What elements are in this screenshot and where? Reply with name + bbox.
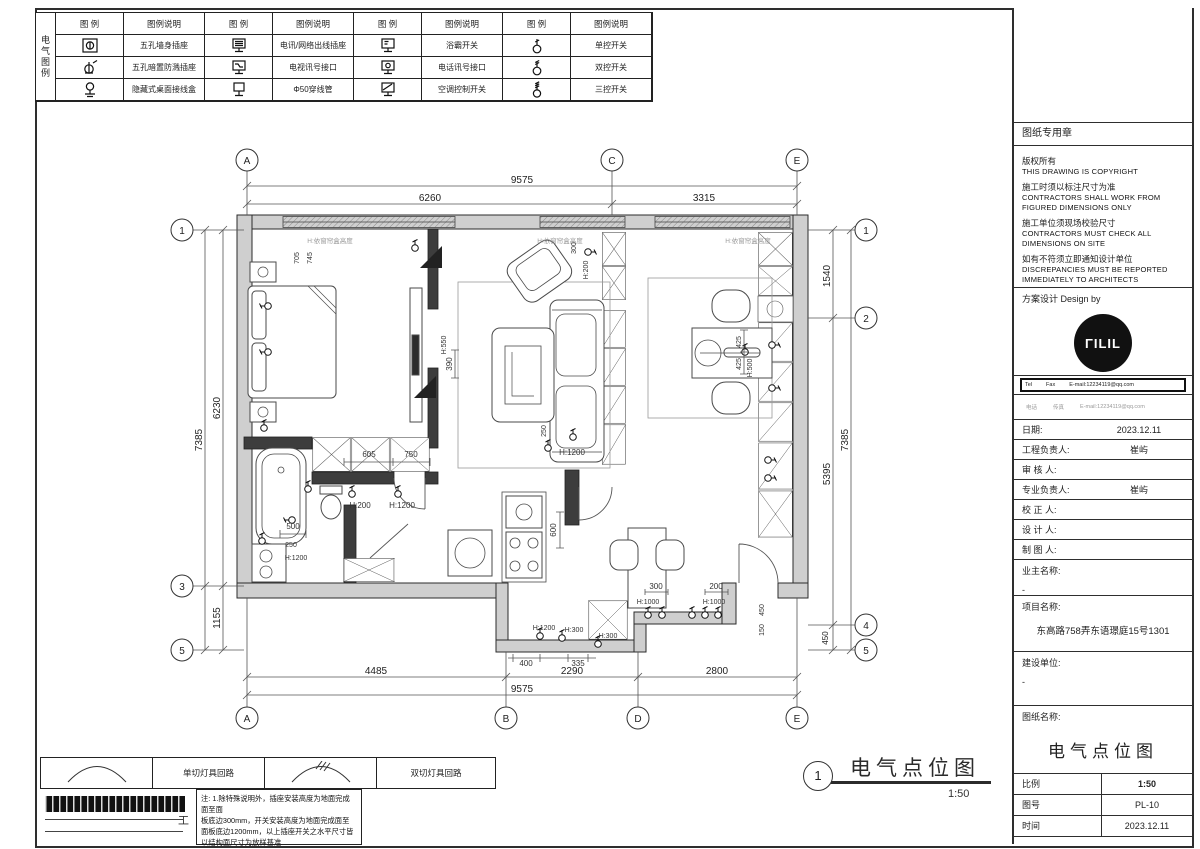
note-line: THIS DRAWING IS COPYRIGHT [1022,167,1192,177]
fax-label: Fax [1046,382,1055,388]
field-value: PL-10 [1102,795,1192,815]
furniture [248,236,772,608]
svg-text:250: 250 [285,542,297,549]
tv-signal-outlet-icon [205,57,273,79]
drawing-scale: 1:50 [948,788,969,800]
drawing-sheet: { "legend": { "side_label": "电气图例", "hea… [0,0,1200,849]
note-line: IMMEDIATELY TO ARCHITECTS [1022,275,1192,285]
installation-notes: 注: 1.除特殊说明外，插座安装高度为地面完成面至面 板底边300mm，开关安装… [196,789,362,845]
legend-header-icon: 图 例 [205,13,273,35]
svg-text:H:依窗帘盒高度: H:依窗帘盒高度 [307,236,353,245]
legend-item-label: 浴霸开关 [422,35,503,57]
field-label: 项目名称: [1022,602,1061,612]
ac-control-switch-icon [354,79,422,101]
svg-text:450: 450 [821,631,830,645]
builder-section: 建设单位:- [1014,652,1192,706]
svg-text:3315: 3315 [693,193,716,204]
phone-signal-outlet-icon [354,57,422,79]
legend-header-desc: 图例说明 [273,13,354,35]
field-label: 工程负责人: [1022,443,1094,456]
svg-text:705: 705 [294,252,301,264]
tel-label: 电话 [1026,403,1037,411]
svg-text:200: 200 [709,582,723,591]
note-line: 施工单位须现场校验尺寸 [1022,217,1192,229]
symbol-strip [45,796,185,812]
svg-text:A: A [244,156,251,167]
svg-text:2: 2 [863,314,869,325]
circuit-legend-label: 单切灯具回路 [153,758,265,788]
sheet-number-row: 图号PL-10 [1014,795,1192,816]
field-label: 审 核 人: [1022,463,1094,476]
field-label: 专业负责人: [1022,483,1094,496]
svg-text:5: 5 [179,646,185,657]
svg-text:4: 4 [863,621,869,632]
design-by-label: 方案设计 Design by [1022,294,1101,304]
svg-text:300: 300 [649,582,663,591]
svg-text:E: E [794,156,801,167]
field-label: 建设单位: [1022,658,1061,668]
legend-item-label: 双控开关 [571,57,652,79]
svg-text:H:300: H:300 [565,627,584,634]
legend-header-desc: 图例说明 [422,13,503,35]
email-label: E-mail:12234119@qq.com [1080,404,1145,410]
svg-text:H:1000: H:1000 [703,599,726,606]
svg-text:9575: 9575 [511,175,534,186]
svg-text:4485: 4485 [365,666,388,677]
svg-text:425: 425 [736,358,743,370]
note-line: 注: 1.除特殊说明外，插座安装高度为地面完成面至面 [201,793,357,815]
triple-switch-icon [503,79,571,101]
note-line: 板底边300mm，开关安装高度为地面完成面至 [201,815,357,826]
svg-text:2800: 2800 [706,666,729,677]
legend-item-label: 五孔墙身插座 [124,35,205,57]
svg-text:605: 605 [362,450,376,459]
field-value: 2023.12.11 [1094,425,1184,435]
svg-text:400: 400 [519,659,533,668]
legend-item-label: 电视讯号接口 [273,57,354,79]
strip-end-mark: 工 [178,812,189,828]
circuit-legend-label: 双切灯具回路 [377,758,495,788]
svg-text:H:1200: H:1200 [559,448,585,457]
drawing-title: 电气点位图 [850,752,980,782]
svg-text:C: C [608,156,615,167]
svg-text:H:1000: H:1000 [637,599,660,606]
field-label: 时间 [1014,816,1102,836]
field-label: 图纸名称: [1022,712,1061,722]
svg-text:335: 335 [571,659,585,668]
svg-text:H:200: H:200 [583,261,590,280]
note-line: DIMENSIONS ON SITE [1022,239,1192,249]
time-row: 时间2023.12.11 [1014,816,1192,837]
strip-line [45,819,183,820]
field-value: - [1022,677,1184,687]
studio-logo: ΓILIL [1074,314,1132,372]
field-value: - [1022,585,1184,595]
scale-row: 比例1:50 [1014,774,1192,795]
legend-header-icon: 图 例 [56,13,124,35]
single-circuit-arc-icon [41,758,153,788]
legend-item-label: 单控开关 [571,35,652,57]
title-block-blank [1014,8,1192,123]
svg-text:1155: 1155 [212,607,223,629]
field-row-project-lead: 工程负责人:崔屿 [1014,440,1192,460]
svg-text:H:1200: H:1200 [285,555,308,562]
legend-header-desc: 图例说明 [571,13,652,35]
field-label: 图号 [1014,795,1102,815]
drawing-number-bubble: 1 [803,761,833,791]
note-line: 以结构面尺寸为放样基准 [201,837,357,848]
note-line: DISCREPANCIES MUST BE REPORTED [1022,265,1192,275]
field-row-corrector: 校 正 人: [1014,500,1192,520]
note-line: 施工时须以标注尺寸为准 [1022,181,1192,193]
double-circuit-arc-icon [265,758,377,788]
strip-line [45,831,183,832]
telecom-network-outlet-icon [205,35,273,57]
svg-text:3: 3 [179,582,185,593]
svg-text:6230: 6230 [212,396,223,419]
field-label: 比例 [1014,774,1102,794]
fax-label: 传真 [1053,403,1064,411]
note-line: CONTRACTORS MUST CHECK ALL [1022,229,1192,239]
svg-text:600: 600 [549,523,558,537]
svg-text:500: 500 [286,522,300,531]
svg-text:5395: 5395 [822,462,833,485]
logo-text: ΓILIL [1085,336,1121,351]
owner-section: 业主名称:- [1014,560,1192,596]
tel-label: Tel [1025,382,1032,388]
field-label: 日期: [1022,423,1094,436]
field-value: 2023.12.11 [1102,816,1192,836]
svg-text:750: 750 [404,450,418,459]
field-row-date: 日期:2023.12.11 [1014,420,1192,440]
field-value: 1:50 [1102,774,1192,794]
concealed-desktop-junction-box-icon [56,79,124,101]
svg-text:9575: 9575 [511,684,534,695]
legend-item-label: 五孔暗置防溅插座 [124,57,205,79]
svg-text:H:550: H:550 [441,336,448,355]
single-switch-icon [503,35,571,57]
svg-text:6260: 6260 [419,193,442,204]
legend-item-label: 电讯/网络出线插座 [273,35,354,57]
legend-header-desc: 图例说明 [124,13,205,35]
legend-item-label: 三控开关 [571,79,652,101]
bath-heater-switch-icon [354,35,422,57]
floor-plan: 9575 6260 3315 4485 2290 2800 9575 7385 … [150,128,910,743]
svg-text:5: 5 [863,646,869,657]
field-value: 东高路758弄东语璟庭15号1301 [1022,623,1184,637]
note-line: 版权所有 [1022,155,1192,167]
dimension-labels: 9575 6260 3315 4485 2290 2800 9575 7385 … [194,175,851,695]
legend-header-icon: 图 例 [354,13,422,35]
five-hole-wall-socket-icon [56,35,124,57]
svg-text:745: 745 [307,252,314,264]
field-row-drafter: 制 图 人: [1014,540,1192,560]
svg-text:H:300: H:300 [599,633,618,640]
note-line: 面板底边1200mm，以上插座开关之水平尺寸皆 [201,826,357,837]
legend-header-icon: 图 例 [503,13,571,35]
svg-text:425: 425 [736,336,743,348]
design-by-section: 方案设计 Design by ΓILIL [1014,288,1192,376]
field-label: 校 正 人: [1022,503,1094,516]
svg-text:150: 150 [759,624,766,636]
svg-text:1: 1 [179,226,185,237]
field-row-designer: 设 计 人: [1014,520,1192,540]
svg-text:1540: 1540 [822,264,833,287]
legend-side-label: 电气图例 [36,13,56,101]
legend-item-label: 空调控制开关 [422,79,503,101]
field-row-discipline-lead: 专业负责人:崔屿 [1014,480,1192,500]
legend-item-label: 隐藏式桌面接线盒 [124,79,205,101]
svg-text:7385: 7385 [194,428,205,451]
field-label: 制 图 人: [1022,543,1094,556]
electrical-legend-table: 电气图例 图 例 图例说明 图 例 图例说明 图 例 图例说明 图 例 图例说明… [35,12,653,102]
field-label: 设 计 人: [1022,523,1094,536]
svg-text:7385: 7385 [840,428,851,451]
circuit-legend-table: 单切灯具回路 双切灯具回路 [40,757,496,789]
svg-text:450: 450 [759,604,766,616]
svg-text:B: B [503,714,510,725]
svg-text:390: 390 [445,357,454,371]
note-line: 如有不符须立即通知设计单位 [1022,253,1192,265]
field-row-reviewer: 审 核 人: [1014,460,1192,480]
svg-text:H:200: H:200 [349,501,371,510]
drawing-title-underline [831,781,991,784]
stamp-title: 图纸专用章 [1014,123,1192,146]
field-value: 崔屿 [1094,483,1184,496]
five-hole-splash-proof-socket-icon [56,57,124,79]
field-label: 业主名称: [1022,566,1061,576]
svg-text:250: 250 [541,425,548,437]
contact-row-2: 电话 传真 E-mail:12234119@qq.com [1014,395,1192,420]
svg-text:300: 300 [571,242,578,254]
svg-text:H:依窗帘盒高度: H:依窗帘盒高度 [725,236,771,245]
email-label: E-mail:12234119@qq.com [1069,382,1134,388]
note-line: FIGURED DIMENSIONS ONLY [1022,203,1192,213]
svg-text:E: E [794,714,801,725]
svg-text:A: A [244,714,251,725]
title-block: 图纸专用章 版权所有 THIS DRAWING IS COPYRIGHT 施工时… [1012,8,1192,844]
double-switch-icon [503,57,571,79]
svg-text:H:1200: H:1200 [389,501,415,510]
svg-text:H:1200: H:1200 [533,625,556,632]
sheet-name-value: 电气点位图 [1022,737,1184,762]
sheet-name-section: 图纸名称:电气点位图 [1014,706,1192,774]
legend-item-label: Φ50穿线管 [273,79,354,101]
project-section: 项目名称:东高路758弄东语璟庭15号1301 [1014,596,1192,652]
copyright-notes: 版权所有 THIS DRAWING IS COPYRIGHT 施工时须以标注尺寸… [1014,146,1192,288]
legend-item-label: 电话讯号接口 [422,57,503,79]
svg-text:1: 1 [863,226,869,237]
note-line: CONTRACTORS SHALL WORK FROM [1022,193,1192,203]
conduit-icon [205,79,273,101]
svg-text:H:500: H:500 [747,359,754,378]
svg-text:D: D [634,714,641,725]
contact-bar: Tel Fax E-mail:12234119@qq.com [1014,376,1192,395]
field-value: 崔屿 [1094,443,1184,456]
